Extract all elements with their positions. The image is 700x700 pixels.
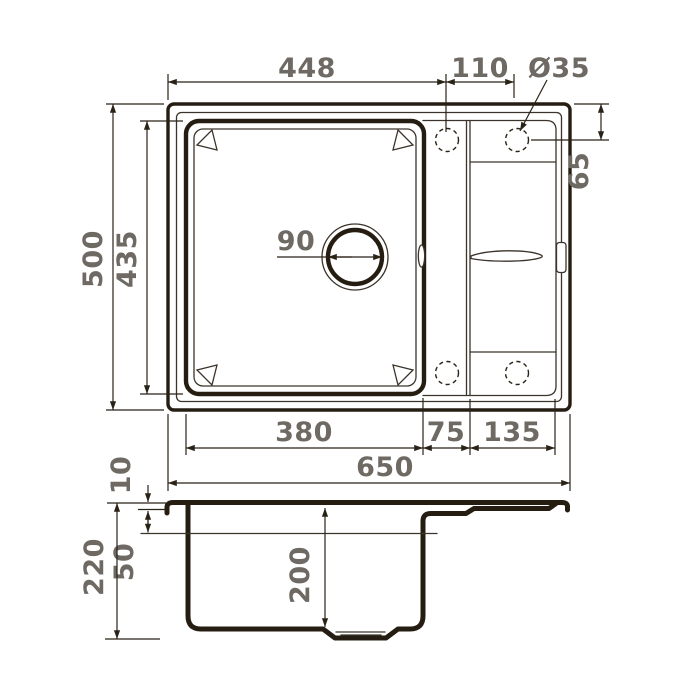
dim-65-label: 65 bbox=[564, 152, 595, 191]
dim-135-label: 135 bbox=[483, 417, 541, 448]
drainboard-groove bbox=[471, 251, 542, 261]
sink-technical-drawing-page: 448 110 Ø35 65 500 435 90 380 75 13 bbox=[0, 0, 700, 700]
dim-220-label: 220 bbox=[79, 538, 110, 596]
faucet-hole-bottom-right bbox=[506, 362, 529, 385]
side-view bbox=[141, 502, 568, 639]
dim-650-label: 650 bbox=[356, 452, 414, 483]
dim-448-label: 448 bbox=[278, 53, 336, 84]
drainboard-edge-slot bbox=[557, 243, 567, 273]
dim-110-label: 110 bbox=[451, 53, 509, 84]
faucet-hole-top-left bbox=[436, 129, 459, 152]
dim-50-label: 50 bbox=[109, 543, 140, 582]
dim-200-label: 200 bbox=[285, 546, 316, 604]
overflow-slot bbox=[418, 245, 424, 267]
dim-500-label: 500 bbox=[78, 230, 109, 288]
dim-435-label: 435 bbox=[112, 230, 143, 288]
dim-380-label: 380 bbox=[275, 417, 333, 448]
dim-hole-diameter-label: Ø35 bbox=[528, 53, 590, 84]
dim-10-label: 10 bbox=[106, 456, 137, 495]
sink-technical-drawing: 448 110 Ø35 65 500 435 90 380 75 13 bbox=[0, 0, 700, 700]
dim-75-label: 75 bbox=[427, 417, 466, 448]
bowl-section-profile bbox=[188, 504, 556, 639]
faucet-hole-bottom-left bbox=[436, 362, 459, 385]
faucet-hole-top-right bbox=[506, 129, 529, 152]
dim-90-label: 90 bbox=[277, 226, 316, 257]
